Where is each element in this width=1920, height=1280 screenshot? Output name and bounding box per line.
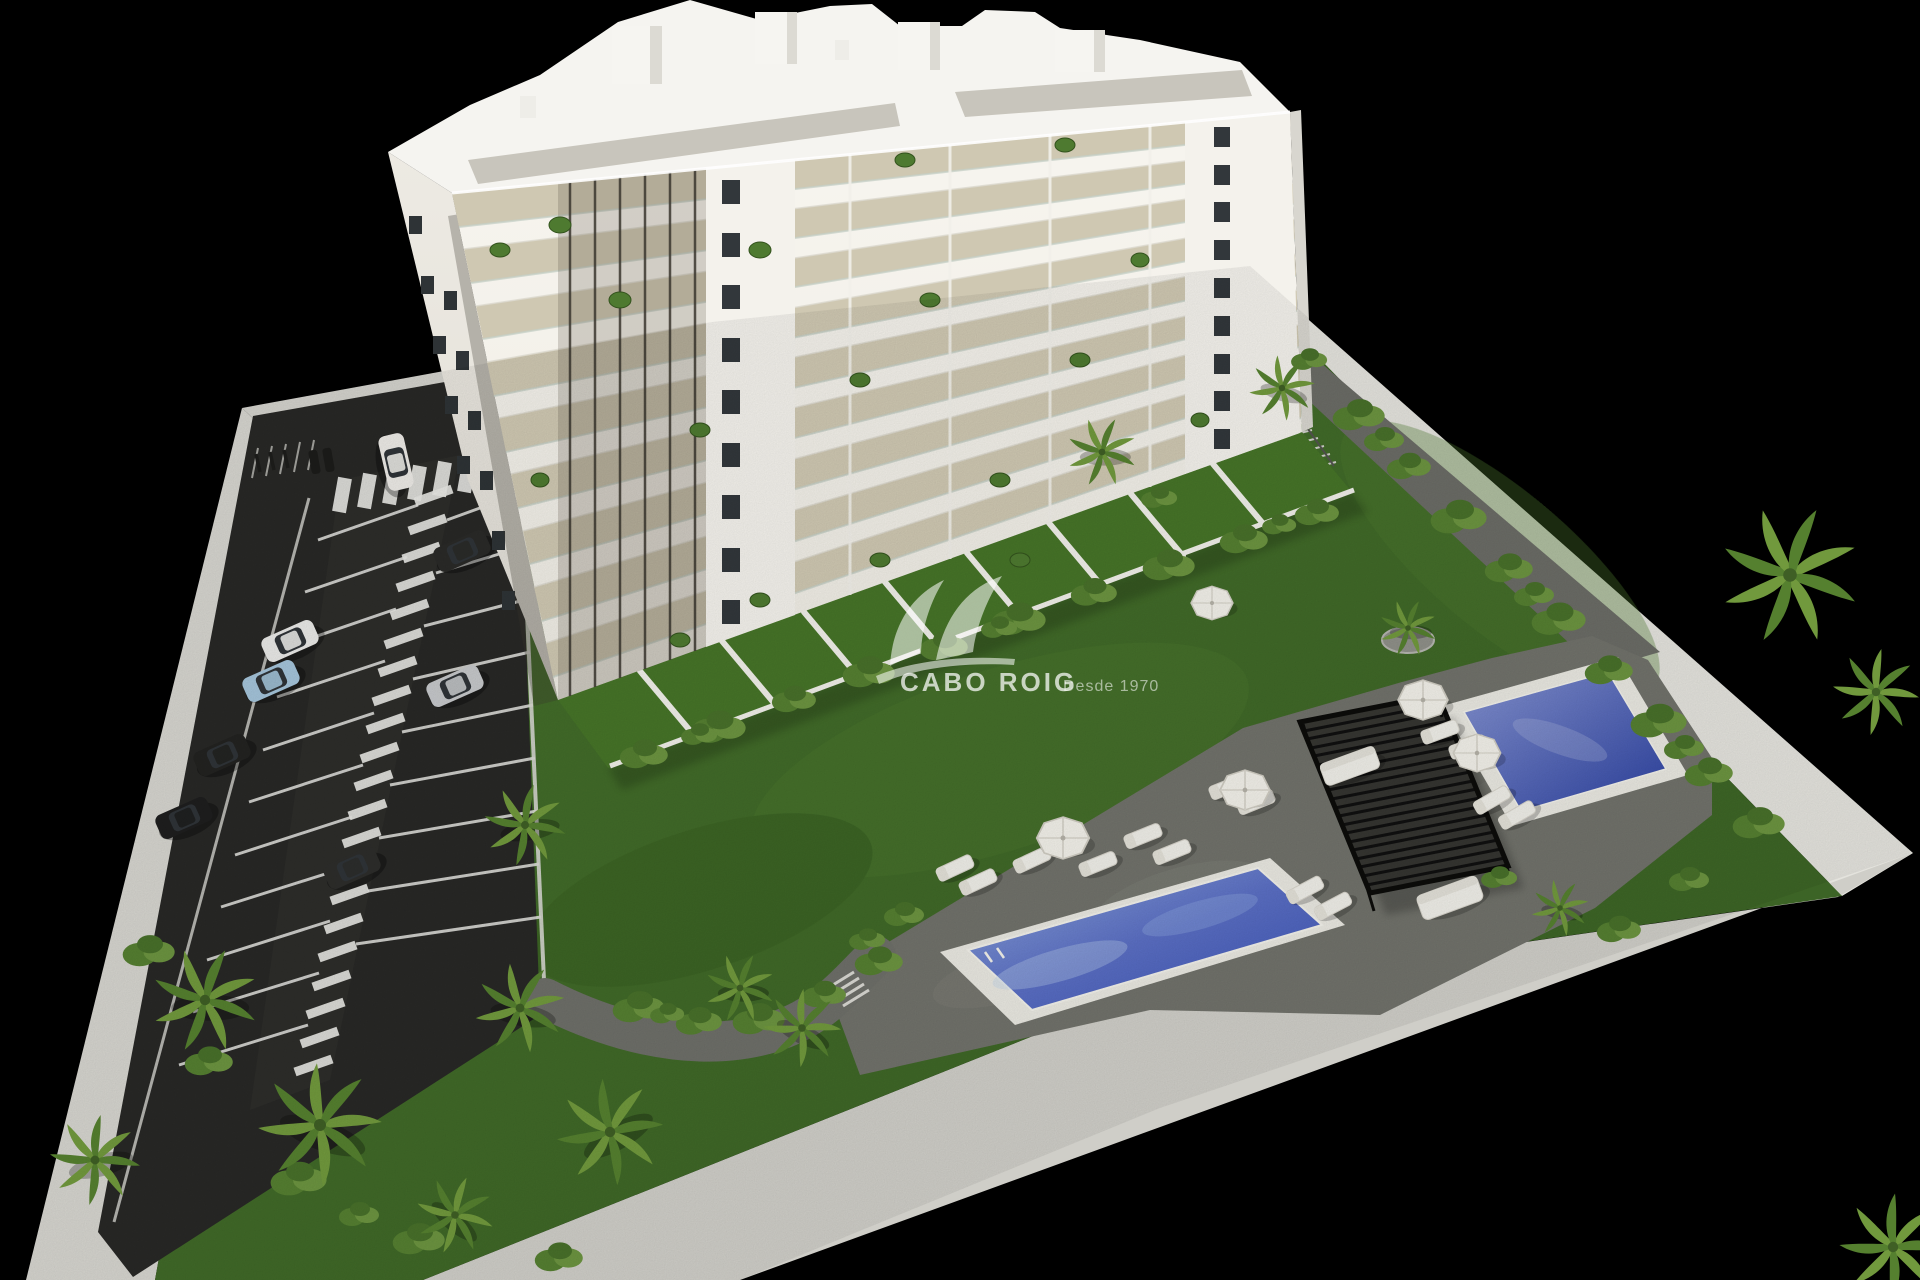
watermark-brand: CABO ROIG (900, 667, 1077, 697)
roof-chimney (520, 96, 536, 118)
watermark-tagline: Desde 1970 (1063, 678, 1159, 695)
roof-chimney (835, 40, 849, 60)
render-canvas: CABO ROIG Desde 1970 (0, 0, 1920, 1280)
site-render: CABO ROIG Desde 1970 (0, 0, 1920, 1280)
